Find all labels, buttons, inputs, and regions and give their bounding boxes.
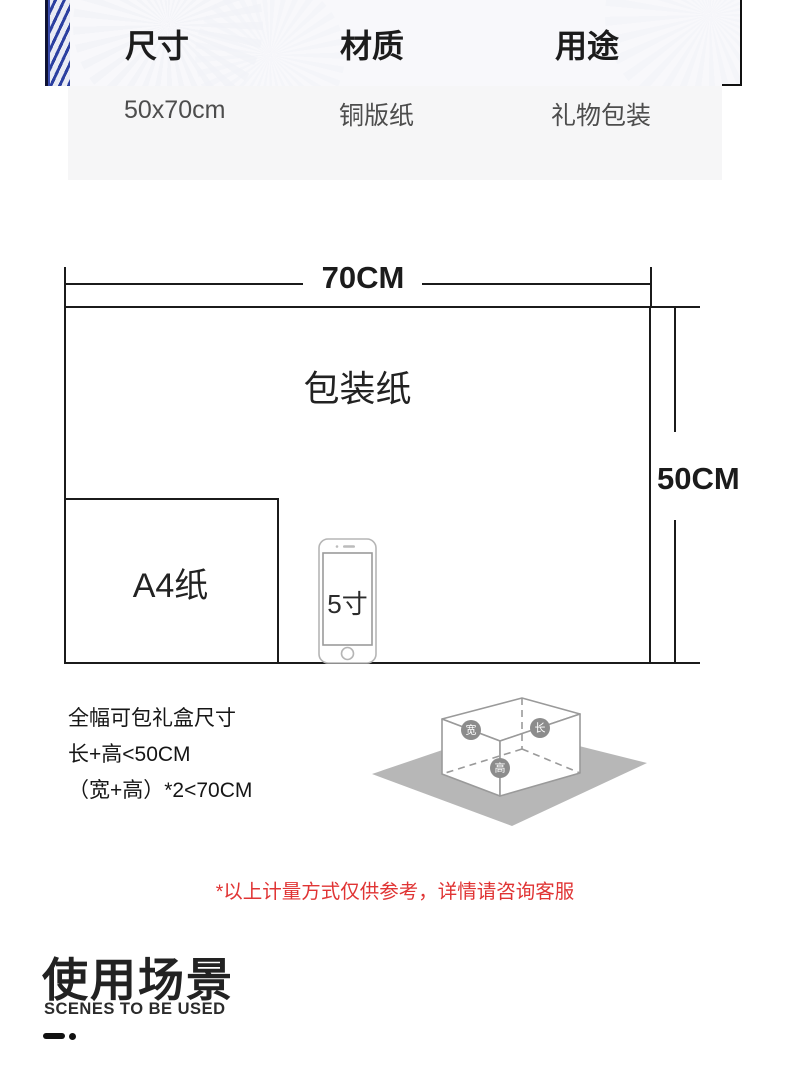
width-dimension-line: [64, 283, 303, 285]
height-dimension-label: 50CM: [657, 461, 740, 497]
a4-paper-label: A4纸: [133, 558, 209, 607]
dash-dot-icon: [43, 1033, 65, 1039]
wrapping-paper-label: 包装纸: [64, 360, 651, 412]
phone-size-label: 5寸: [327, 589, 367, 619]
badge-length: 长: [535, 722, 546, 735]
giftbox-3d-icon: 宽 长 高: [362, 676, 662, 831]
dash-dot-icon: [69, 1033, 76, 1040]
height-dimension-line: [674, 308, 676, 432]
width-dimension-label: 70CM: [316, 260, 410, 296]
phone-camera-icon: [336, 545, 339, 548]
photo-frame-border: [722, 84, 742, 86]
section-subtitle: SCENES TO BE USED: [44, 1000, 225, 1019]
guide-line-rule2: （宽+高）*2<70CM: [68, 773, 252, 809]
photo-frame-border: [740, 0, 742, 86]
height-dimension-line: [674, 520, 676, 662]
a4-paper-outline: A4纸: [64, 498, 279, 664]
height-dimension-tick: [651, 662, 700, 664]
spec-header-material: 材质: [340, 21, 404, 67]
guide-line-rule1: 长+高<50CM: [68, 737, 252, 773]
spec-header-usage: 用途: [555, 21, 619, 67]
badge-width: 宽: [466, 723, 477, 737]
spec-value-size: 50x70cm: [124, 96, 225, 125]
badge-height: 高: [495, 761, 506, 775]
width-dimension-tick: [650, 267, 652, 308]
guide-line-title: 全幅可包礼盒尺寸: [68, 701, 252, 737]
product-detail-page: 尺寸 材质 用途 50x70cm 铜版纸 礼物包装 70CM 包装纸 50CM …: [0, 0, 790, 1083]
wrapped-roll-icon: [45, 0, 70, 86]
width-dimension-line: [422, 283, 651, 285]
phone-speaker-icon: [343, 545, 355, 548]
spec-value-usage: 礼物包装: [551, 96, 651, 132]
spec-header-size: 尺寸: [125, 21, 189, 67]
disclaimer-note: *以上计量方式仅供参考，详情请咨询客服: [0, 875, 790, 904]
phone-icon: 5寸: [318, 538, 377, 664]
giftbox-guide-text: 全幅可包礼盒尺寸 长+高<50CM （宽+高）*2<70CM: [68, 701, 252, 809]
width-dimension-tick: [64, 267, 66, 308]
spec-value-material: 铜版纸: [339, 96, 414, 132]
